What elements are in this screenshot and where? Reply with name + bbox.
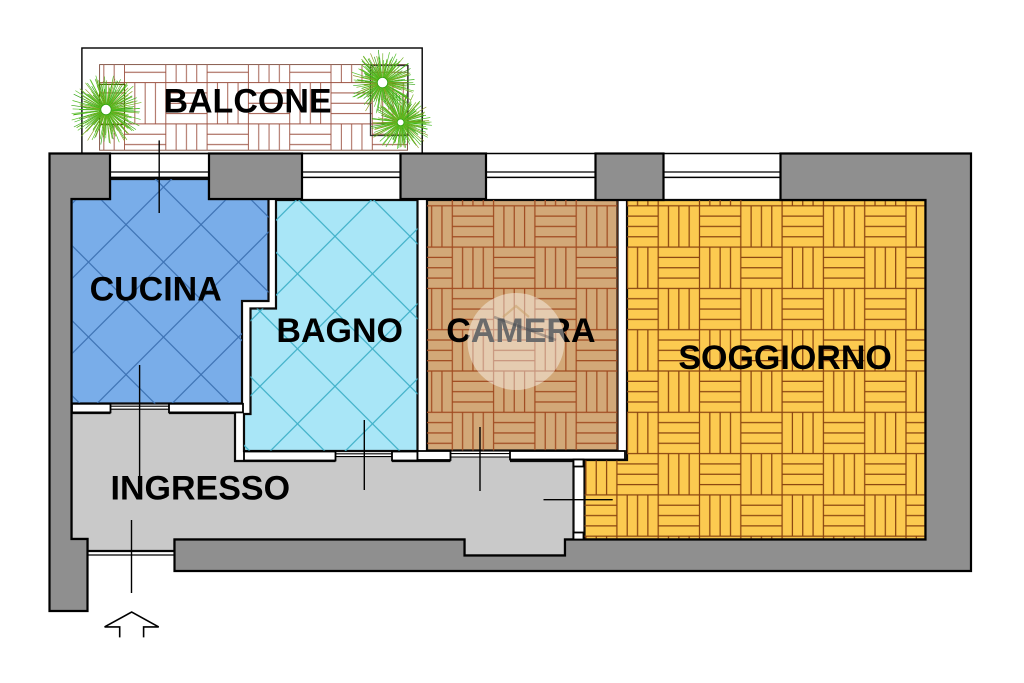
svg-text:SOGGIORNO: SOGGIORNO — [678, 339, 891, 377]
svg-text:INGRESSO: INGRESSO — [111, 469, 290, 507]
svg-text:BAGNO: BAGNO — [276, 312, 403, 350]
svg-text:BALCONE: BALCONE — [163, 83, 331, 121]
svg-text:CUCINA: CUCINA — [90, 271, 222, 309]
